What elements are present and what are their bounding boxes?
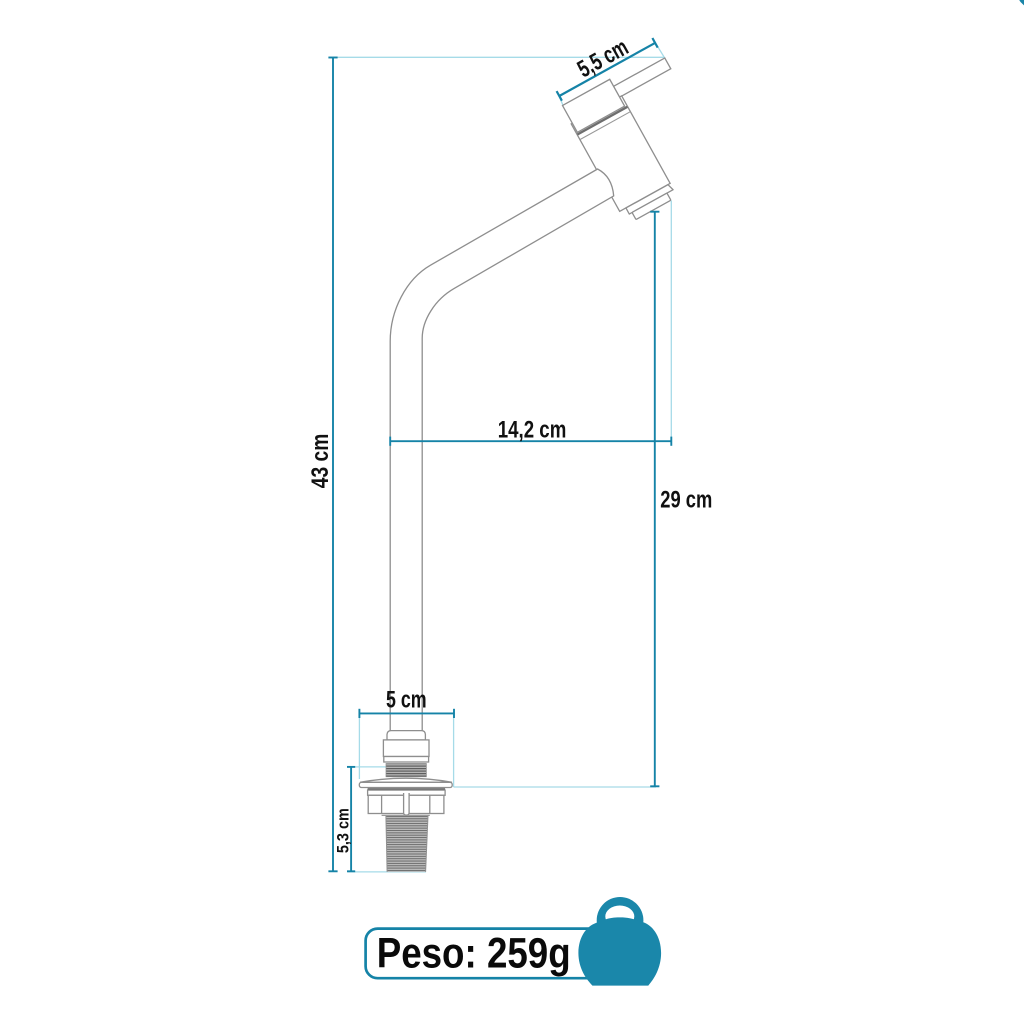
svg-text:5,3 cm: 5,3 cm xyxy=(334,808,352,853)
svg-text:5 cm: 5 cm xyxy=(386,686,427,713)
svg-text:29 cm: 29 cm xyxy=(660,487,712,514)
svg-text:43 cm: 43 cm xyxy=(307,434,334,489)
svg-text:Peso: 259g: Peso: 259g xyxy=(377,931,571,978)
svg-text:14,2 cm: 14,2 cm xyxy=(498,417,567,444)
